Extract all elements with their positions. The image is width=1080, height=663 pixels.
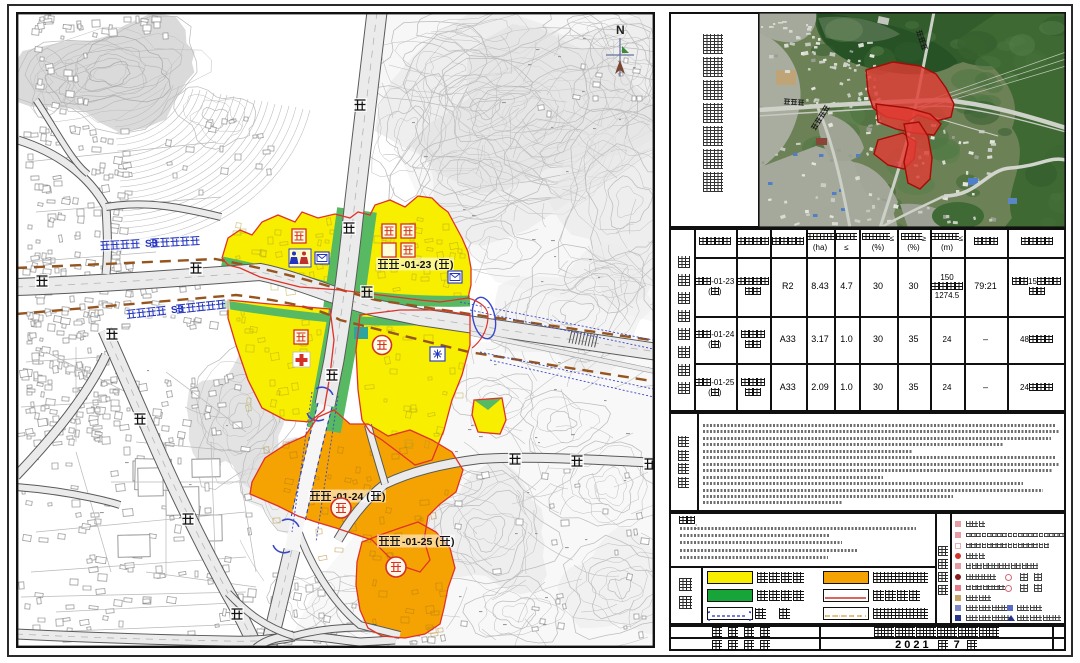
svg-text:): ) (382, 491, 386, 503)
svg-text:S3: S3 (145, 238, 158, 250)
svg-text:N: N (616, 23, 625, 37)
svg-text:-01-23 (: -01-23 ( (401, 259, 438, 271)
svg-text:): ) (450, 259, 454, 271)
svg-text:): ) (451, 536, 455, 548)
svg-text:-01-25 (: -01-25 ( (402, 536, 439, 548)
